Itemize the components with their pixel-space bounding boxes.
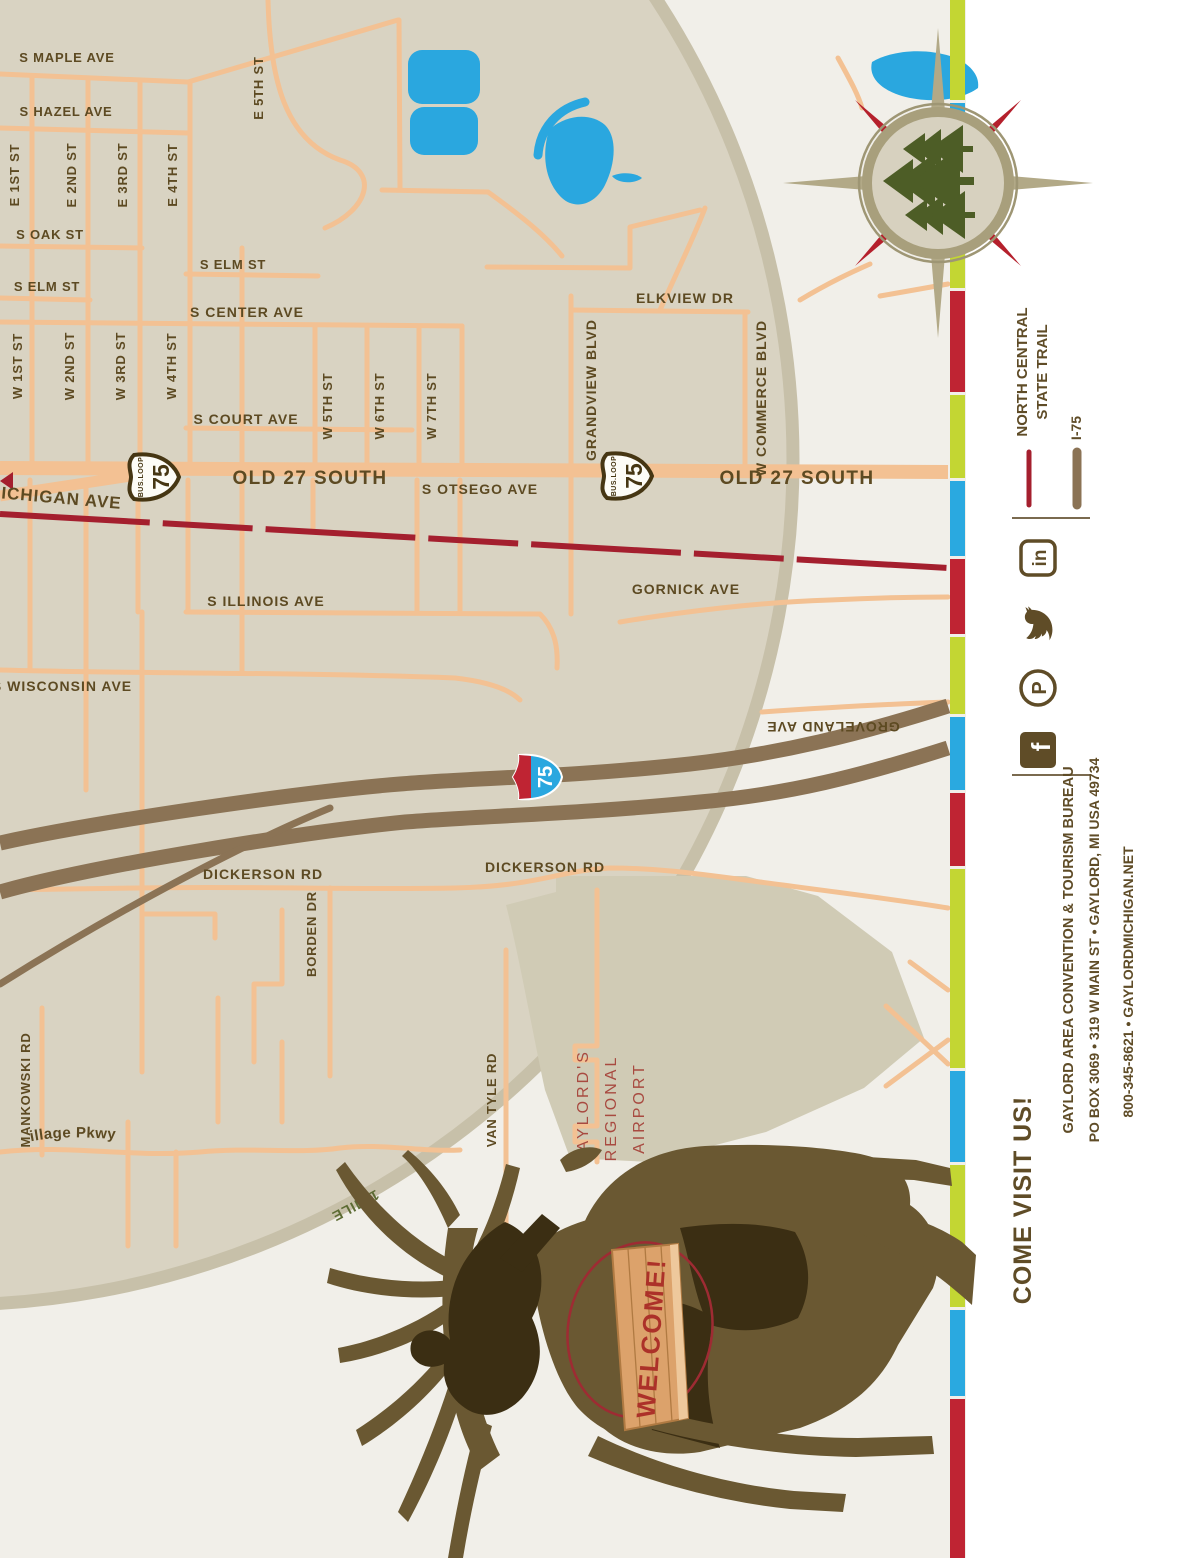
airport-label-line3: AIRPORT [631,1062,648,1154]
street-label-dickerson-rd-east: DICKERSON RD [485,859,605,875]
linkedin-icon[interactable]: in [1021,541,1055,575]
street-label-w-5th-st: W 5TH ST [320,372,335,439]
street-label-s-hazel-ave: S HAZEL AVE [19,104,112,119]
twitter-icon[interactable] [1025,606,1053,640]
street-label-van-tyle-rd: VAN TYLE RD [484,1053,499,1148]
street-label-groveland-ave: GROVELAND AVE [766,719,900,735]
street-label-old-27-south-east: OLD 27 SOUTH [719,468,874,489]
pinterest-glyph: P [1029,681,1051,694]
facebook-icon[interactable]: f [1020,732,1056,768]
come-visit-us-heading: COME VISIT US! [1009,1096,1037,1304]
facebook-glyph: f [1026,742,1056,751]
street-label-w-1st-st: W 1ST ST [10,333,25,399]
street-label-w-2nd-st: W 2ND ST [62,332,77,401]
legend-trail-label-line1: NORTH CENTRAL [1014,307,1031,436]
map-canvas: BUS.LOOP 75 BUS.LOOP 75 75 S MAPLE AVE S… [0,0,1200,1558]
street-label-dickerson-rd-west: DICKERSON RD [203,866,323,882]
street-label-s-otsego-ave: S OTSEGO AVE [422,481,538,497]
svg-text:75: 75 [621,463,647,489]
street-label-w-commerce-blvd: W COMMERCE BLVD [753,320,769,476]
street-label-s-court-ave: S COURT AVE [193,411,298,427]
street-label-elkview-dr: ELKVIEW DR [636,290,734,306]
bus-loop-number: 75 [148,464,174,490]
pinterest-icon[interactable]: P [1021,671,1055,705]
bureau-name: GAYLORD AREA CONVENTION & TOURISM BUREAU [1061,766,1077,1133]
gaylord-tourism-map-page: BUS.LOOP 75 BUS.LOOP 75 75 S MAPLE AVE S… [0,0,1200,1558]
airport-label-line2: REGIONAL [603,1055,620,1162]
legend-trail-label-line2: STATE TRAIL [1034,324,1051,419]
street-label-e-5th-st: E 5TH ST [251,56,266,119]
bureau-phone-web: 800-345-8621 • GAYLORDMICHIGAN.NET [1120,846,1136,1118]
street-label-gornick-ave: GORNICK AVE [632,581,740,597]
street-label-s-elm-st-w: S ELM ST [14,279,80,294]
street-label-s-wisconsin-ave: S WISCONSIN AVE [0,678,132,694]
street-label-e-3rd-st: E 3RD ST [115,143,130,208]
street-label-s-elm-st-e: S ELM ST [200,257,266,272]
street-label-w-3rd-st: W 3RD ST [113,332,128,401]
street-label-old-27-south-west: OLD 27 SOUTH [232,468,387,489]
street-label-s-center-ave: S CENTER AVE [190,304,304,320]
street-label-w-6th-st: W 6TH ST [372,372,387,439]
interstate-number: 75 [535,766,557,788]
svg-text:BUS.LOOP: BUS.LOOP [611,456,618,497]
street-label-grandview-blvd: GRANDVIEW BLVD [583,319,599,461]
street-label-borden-dr: BORDEN DR [304,891,319,977]
street-label-w-4th-st: W 4TH ST [164,332,179,399]
street-label-e-4th-st: E 4TH ST [165,143,180,206]
street-label-s-oak-st: S OAK ST [16,227,84,242]
street-label-e-1st-st: E 1ST ST [7,144,22,207]
bus-loop-label: BUS.LOOP [138,457,145,498]
street-label-s-illinois-ave: S ILLINOIS AVE [207,593,324,609]
linkedin-glyph: in [1030,550,1051,567]
street-label-e-2nd-st: E 2ND ST [64,143,79,208]
legend-i75-label: I-75 [1068,416,1084,440]
street-label-w-7th-st: W 7TH ST [424,372,439,439]
street-label-s-maple-ave: S MAPLE AVE [19,50,114,65]
bureau-address: PO BOX 3069 • 319 W MAIN ST • GAYLORD, M… [1086,758,1102,1143]
welcome-sign: WELCOME! [612,1244,688,1430]
sidebar: NORTH CENTRAL STATE TRAIL I-75 in P f CO… [1009,307,1136,1304]
